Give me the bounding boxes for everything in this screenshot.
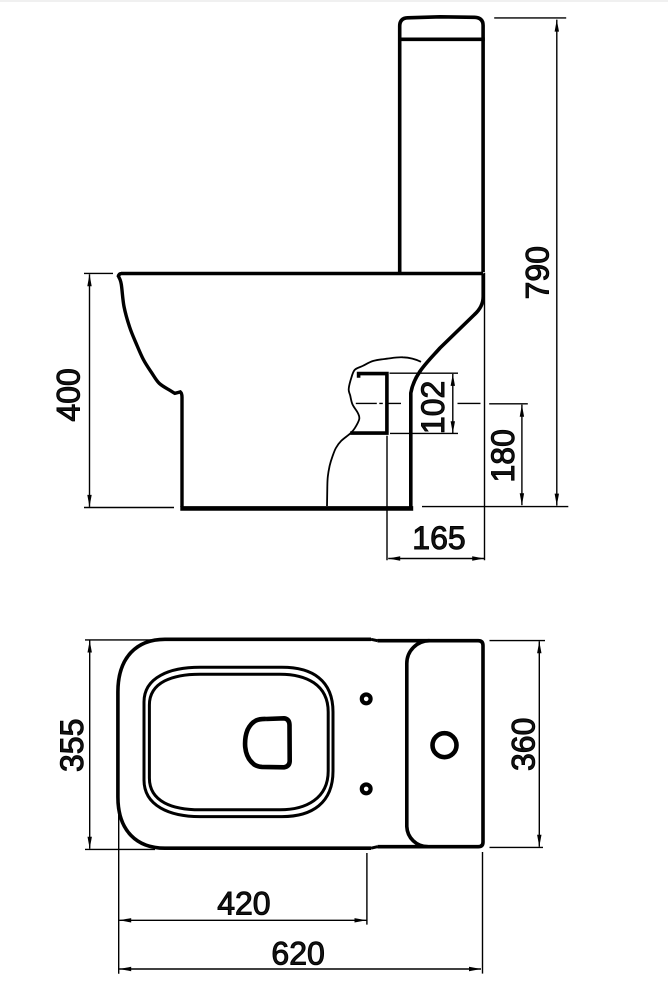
svg-text:360: 360 xyxy=(505,718,541,771)
svg-text:355: 355 xyxy=(54,719,90,772)
svg-text:620: 620 xyxy=(271,935,324,971)
svg-text:420: 420 xyxy=(217,886,270,922)
svg-text:165: 165 xyxy=(412,520,465,556)
svg-text:102: 102 xyxy=(415,381,451,434)
svg-text:790: 790 xyxy=(520,246,556,299)
svg-text:180: 180 xyxy=(485,429,521,482)
svg-text:400: 400 xyxy=(50,368,86,421)
